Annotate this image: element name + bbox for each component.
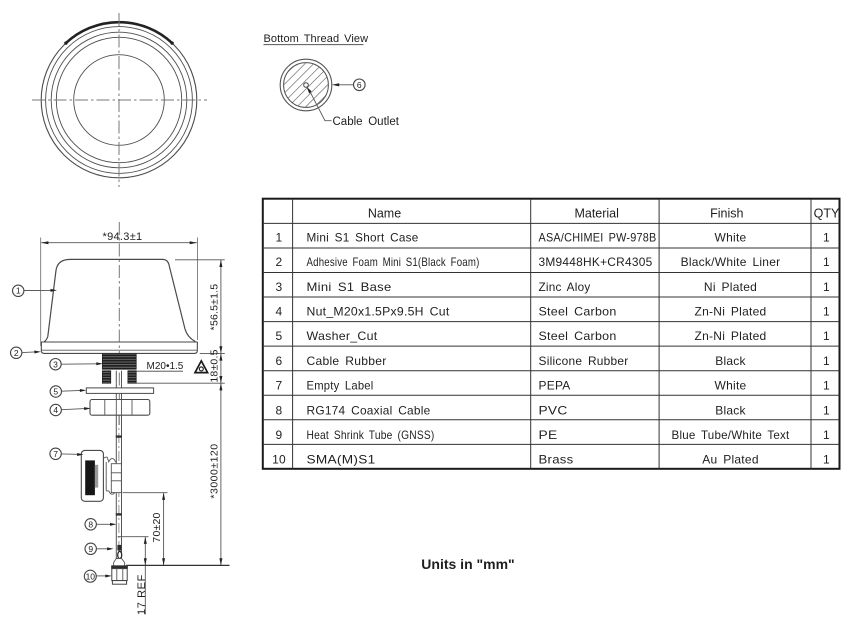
svg-text:ASA/CHIMEI PW-978B: ASA/CHIMEI PW-978B xyxy=(539,230,657,244)
svg-text:White: White xyxy=(715,379,747,393)
svg-text:PVC: PVC xyxy=(539,403,568,417)
svg-text:PEPA: PEPA xyxy=(539,379,571,393)
svg-text:Mini S1 Short Case: Mini S1 Short Case xyxy=(307,230,419,244)
svg-text:*94.3±1: *94.3±1 xyxy=(103,231,143,243)
svg-text:1: 1 xyxy=(823,280,830,294)
svg-text:QTY: QTY xyxy=(814,207,840,221)
svg-text:70±20: 70±20 xyxy=(151,512,163,542)
svg-text:Mini S1 Base: Mini S1 Base xyxy=(307,280,392,294)
svg-text:Black: Black xyxy=(715,354,746,368)
svg-text:4: 4 xyxy=(53,405,58,415)
svg-text:PE: PE xyxy=(539,428,558,442)
svg-text:18±0.5: 18±0.5 xyxy=(209,349,221,382)
svg-text:Adhesive Foam Mini S1(Black Fo: Adhesive Foam Mini S1(Black Foam) xyxy=(307,255,480,269)
svg-text:Bottom Thread View: Bottom Thread View xyxy=(264,33,369,45)
svg-text:1: 1 xyxy=(823,453,830,467)
svg-text:Zn-Ni Plated: Zn-Ni Plated xyxy=(695,329,767,343)
svg-text:Cable Rubber: Cable Rubber xyxy=(307,354,387,368)
svg-text:17 REF: 17 REF xyxy=(136,574,148,615)
svg-text:Cable Outlet: Cable Outlet xyxy=(333,116,400,128)
svg-text:1: 1 xyxy=(823,255,830,269)
svg-text:Steel Carbon: Steel Carbon xyxy=(539,329,617,343)
svg-text:1: 1 xyxy=(276,230,283,244)
svg-text:Units in "mm": Units in "mm" xyxy=(421,556,514,572)
svg-text:10: 10 xyxy=(86,571,96,581)
svg-text:Black: Black xyxy=(715,403,746,417)
svg-text:Zinc Aloy: Zinc Aloy xyxy=(539,280,591,294)
svg-text:Silicone Rubber: Silicone Rubber xyxy=(539,354,629,368)
svg-text:Steel Carbon: Steel Carbon xyxy=(539,305,617,319)
svg-text:1: 1 xyxy=(16,286,21,296)
svg-text:Black/White Liner: Black/White Liner xyxy=(681,255,781,269)
svg-text:Washer_Cut: Washer_Cut xyxy=(307,329,378,343)
svg-text:8: 8 xyxy=(88,519,93,529)
svg-text:RG174 Coaxial Cable: RG174 Coaxial Cable xyxy=(307,403,431,417)
svg-text:Name: Name xyxy=(368,207,401,221)
svg-text:3: 3 xyxy=(53,359,58,369)
svg-text:*3000±120: *3000±120 xyxy=(209,443,221,498)
svg-text:White: White xyxy=(715,230,747,244)
svg-text:3M9448HK+CR4305: 3M9448HK+CR4305 xyxy=(539,255,653,269)
svg-text:3: 3 xyxy=(276,280,283,294)
svg-text:7: 7 xyxy=(53,449,58,459)
svg-text:SMA(M)S1: SMA(M)S1 xyxy=(307,453,376,467)
svg-text:9: 9 xyxy=(276,428,283,442)
svg-text:Heat Shrink Tube (GNSS): Heat Shrink Tube (GNSS) xyxy=(307,428,435,442)
svg-text:Material: Material xyxy=(574,207,618,221)
svg-text:10: 10 xyxy=(272,453,286,467)
svg-text:9: 9 xyxy=(88,544,93,554)
svg-text:Nut_M20x1.5Px9.5H Cut: Nut_M20x1.5Px9.5H Cut xyxy=(307,305,450,319)
svg-text:8: 8 xyxy=(276,403,283,417)
svg-text:M20•1.5: M20•1.5 xyxy=(147,361,184,372)
svg-text:Empty Label: Empty Label xyxy=(307,379,374,393)
svg-text:Brass: Brass xyxy=(539,453,574,467)
svg-text:1: 1 xyxy=(823,305,830,319)
svg-text:6: 6 xyxy=(357,80,362,90)
svg-text:1: 1 xyxy=(823,403,830,417)
svg-text:6: 6 xyxy=(276,354,283,368)
svg-text:2: 2 xyxy=(276,255,283,269)
svg-text:4: 4 xyxy=(276,305,283,319)
svg-text:1: 1 xyxy=(823,329,830,343)
svg-text:Blue Tube/White Text: Blue Tube/White Text xyxy=(672,428,790,442)
svg-text:1: 1 xyxy=(823,379,830,393)
svg-text:*56.5±1.5: *56.5±1.5 xyxy=(209,284,221,331)
svg-text:1: 1 xyxy=(823,230,830,244)
svg-text:1: 1 xyxy=(823,428,830,442)
svg-text:5: 5 xyxy=(276,329,283,343)
svg-text:7: 7 xyxy=(276,379,283,393)
svg-text:1: 1 xyxy=(823,354,830,368)
svg-text:5: 5 xyxy=(53,387,58,397)
svg-text:Au Plated: Au Plated xyxy=(702,453,759,467)
svg-text:Ni Plated: Ni Plated xyxy=(704,280,757,294)
svg-text:Zn-Ni Plated: Zn-Ni Plated xyxy=(695,305,767,319)
svg-text:Finish: Finish xyxy=(710,207,743,221)
svg-text:2: 2 xyxy=(14,348,19,358)
